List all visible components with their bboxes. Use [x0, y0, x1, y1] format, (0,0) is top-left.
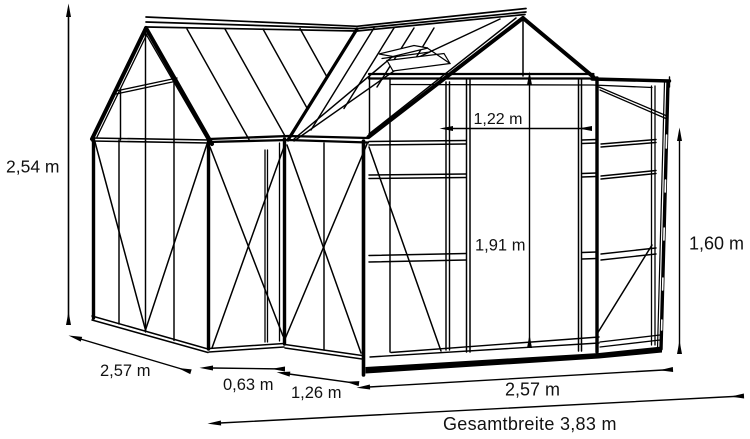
svg-text:2,54 m: 2,54 m — [6, 157, 60, 177]
svg-text:1,91 m: 1,91 m — [475, 237, 525, 255]
svg-text:1,60 m: 1,60 m — [689, 234, 744, 254]
svg-text:0,63 m: 0,63 m — [223, 376, 273, 394]
svg-text:Gesamtbreite 3,83 m: Gesamtbreite 3,83 m — [443, 414, 617, 434]
svg-text:2,57 m: 2,57 m — [100, 362, 150, 380]
svg-text:1,22 m: 1,22 m — [474, 111, 523, 128]
svg-text:2,57 m: 2,57 m — [505, 380, 560, 400]
svg-text:1,26 m: 1,26 m — [291, 384, 341, 402]
